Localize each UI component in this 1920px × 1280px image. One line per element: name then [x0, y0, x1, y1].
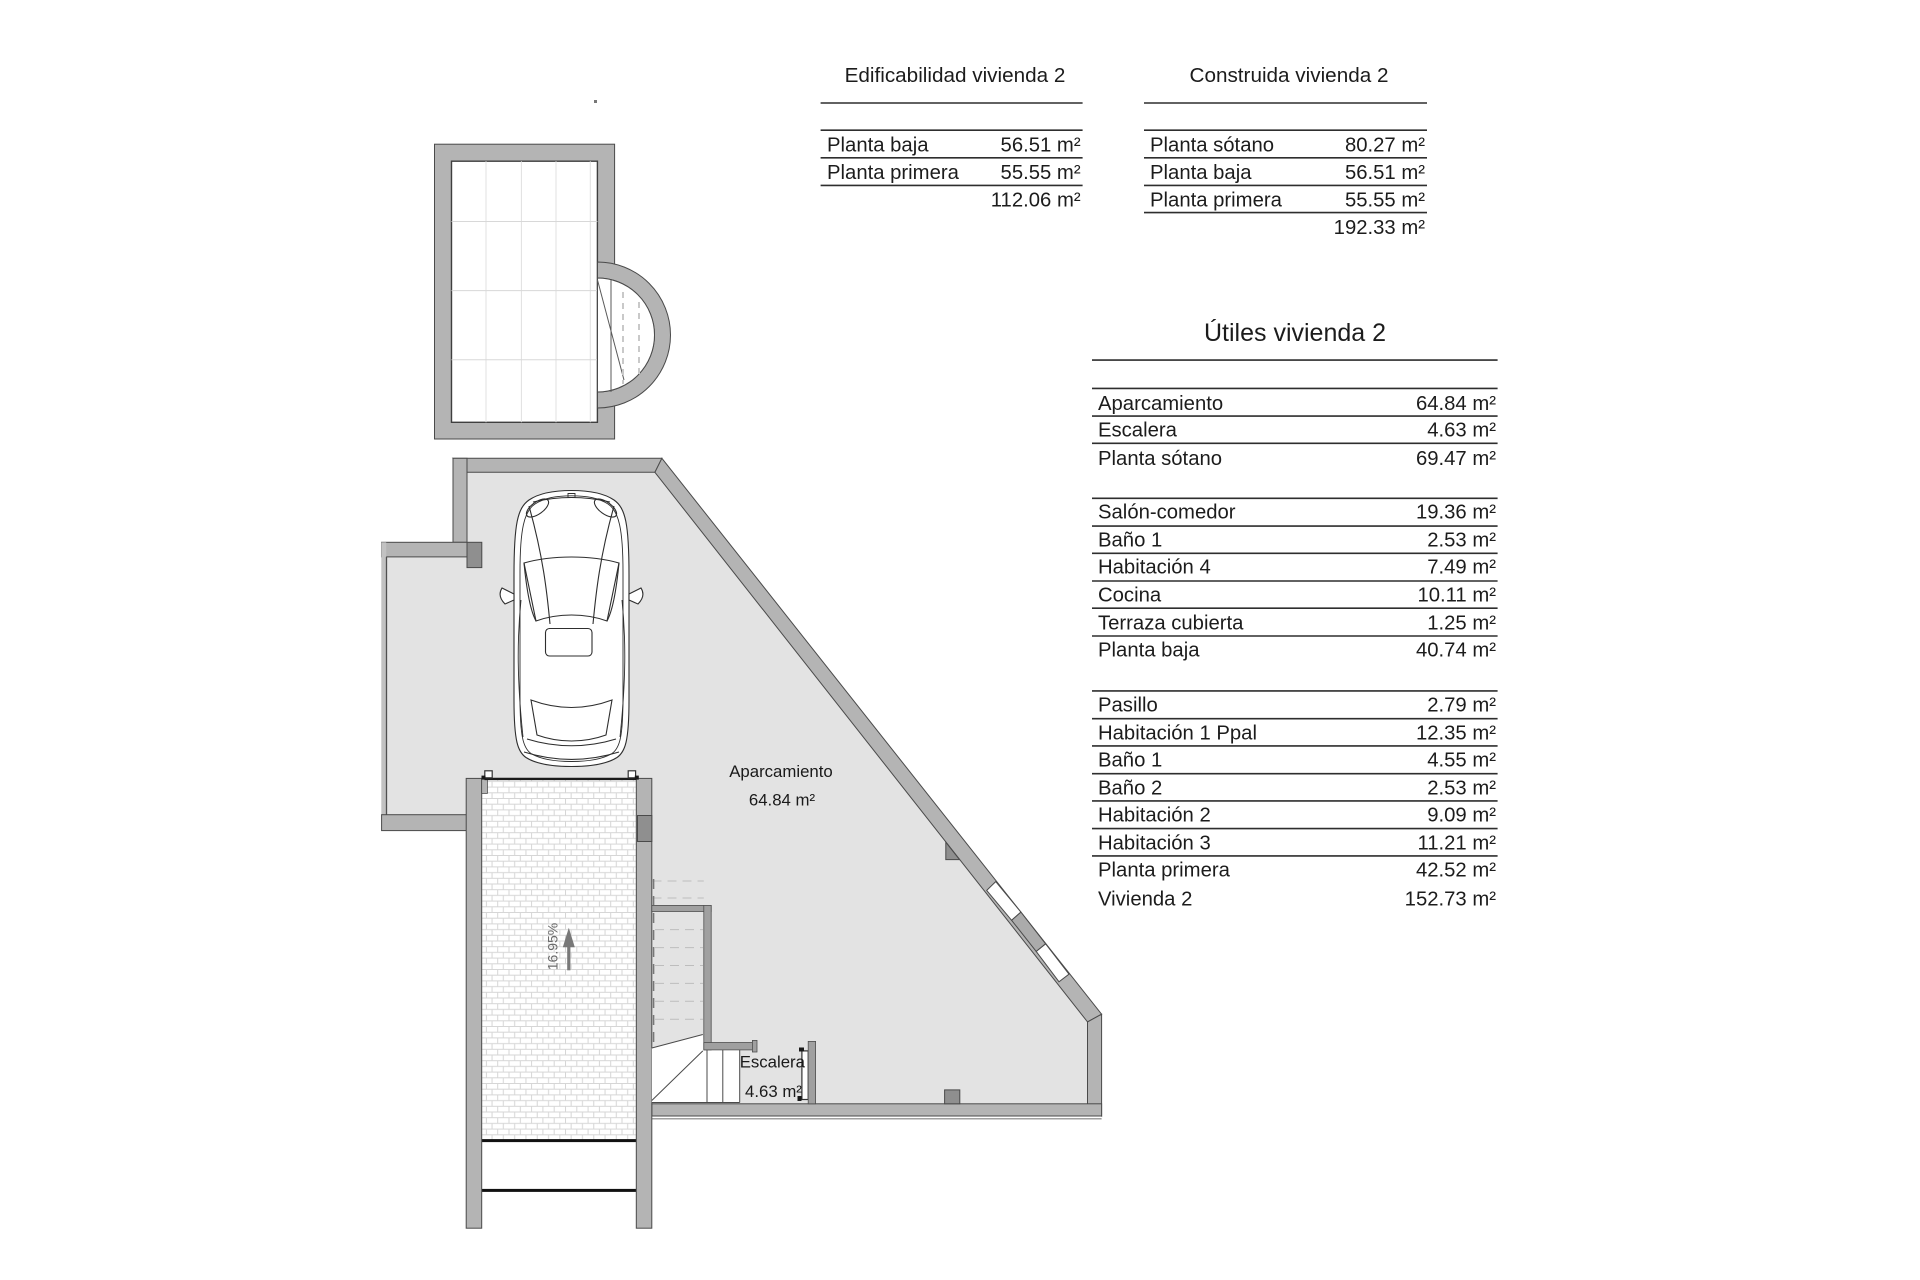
svg-text:4.55 m²: 4.55 m²: [1427, 750, 1496, 772]
svg-text:Edificabilidad vivienda 2: Edificabilidad vivienda 2: [845, 64, 1066, 87]
svg-text:Habitación 1 Ppal: Habitación 1 Ppal: [1098, 723, 1257, 745]
svg-text:Terraza cubierta: Terraza cubierta: [1098, 613, 1244, 635]
svg-text:Útiles vivienda 2: Útiles vivienda 2: [1204, 318, 1386, 347]
svg-text:Baño 1: Baño 1: [1098, 750, 1162, 772]
svg-text:2.79 m²: 2.79 m²: [1427, 695, 1496, 717]
svg-text:Planta primera: Planta primera: [827, 162, 960, 184]
svg-text:10.11 m²: 10.11 m²: [1417, 585, 1496, 607]
svg-text:64.84 m²: 64.84 m²: [1416, 393, 1496, 415]
svg-text:Salón-comedor: Salón-comedor: [1098, 502, 1236, 524]
svg-text:80.27 m²: 80.27 m²: [1345, 135, 1425, 157]
svg-text:19.36 m²: 19.36 m²: [1416, 502, 1496, 524]
svg-text:56.51 m²: 56.51 m²: [1001, 135, 1081, 157]
svg-text:Planta sótano: Planta sótano: [1098, 448, 1222, 470]
svg-text:Escalera: Escalera: [740, 1053, 806, 1072]
svg-text:Planta baja: Planta baja: [827, 135, 929, 157]
svg-text:2.53 m²: 2.53 m²: [1427, 778, 1496, 800]
svg-text:4.63 m²: 4.63 m²: [1427, 420, 1496, 442]
svg-text:4.63 m²: 4.63 m²: [745, 1082, 802, 1101]
svg-text:64.84 m²: 64.84 m²: [749, 791, 816, 810]
svg-text:56.51 m²: 56.51 m²: [1345, 162, 1425, 184]
svg-text:Habitación 4: Habitación 4: [1098, 557, 1211, 579]
svg-text:40.74 m²: 40.74 m²: [1416, 640, 1496, 662]
svg-text:Planta sótano: Planta sótano: [1150, 135, 1274, 157]
svg-text:Construida vivienda 2: Construida vivienda 2: [1190, 64, 1389, 87]
svg-text:69.47 m²: 69.47 m²: [1416, 448, 1496, 470]
svg-text:152.73 m²: 152.73 m²: [1405, 889, 1497, 911]
svg-text:42.52 m²: 42.52 m²: [1416, 860, 1496, 882]
svg-text:Vivienda 2: Vivienda 2: [1098, 889, 1192, 911]
svg-text:Planta baja: Planta baja: [1098, 640, 1200, 662]
svg-text:55.55 m²: 55.55 m²: [1001, 162, 1081, 184]
svg-text:Pasillo: Pasillo: [1098, 695, 1158, 717]
svg-text:1.25 m²: 1.25 m²: [1427, 613, 1496, 635]
svg-text:Habitación 2: Habitación 2: [1098, 805, 1211, 827]
svg-text:Cocina: Cocina: [1098, 585, 1162, 607]
svg-text:Aparcamiento: Aparcamiento: [1098, 393, 1223, 415]
svg-text:11.21 m²: 11.21 m²: [1417, 833, 1496, 855]
svg-text:16.95%: 16.95%: [545, 923, 561, 970]
svg-text:55.55 m²: 55.55 m²: [1345, 190, 1425, 212]
svg-text:Planta baja: Planta baja: [1150, 162, 1252, 184]
svg-text:9.09 m²: 9.09 m²: [1427, 805, 1496, 827]
svg-text:Escalera: Escalera: [1098, 420, 1178, 442]
svg-text:12.35 m²: 12.35 m²: [1416, 723, 1496, 745]
svg-text:192.33 m²: 192.33 m²: [1334, 217, 1426, 239]
svg-text:7.49 m²: 7.49 m²: [1427, 557, 1496, 579]
svg-text:Planta primera: Planta primera: [1150, 190, 1283, 212]
svg-text:112.06 m²: 112.06 m²: [991, 190, 1081, 212]
svg-text:Baño 1: Baño 1: [1098, 530, 1162, 552]
svg-text:Habitación 3: Habitación 3: [1098, 833, 1211, 855]
svg-text:Aparcamiento: Aparcamiento: [729, 762, 833, 781]
svg-text:Baño 2: Baño 2: [1098, 778, 1162, 800]
svg-text:2.53 m²: 2.53 m²: [1427, 530, 1496, 552]
svg-text:Planta primera: Planta primera: [1098, 860, 1231, 882]
